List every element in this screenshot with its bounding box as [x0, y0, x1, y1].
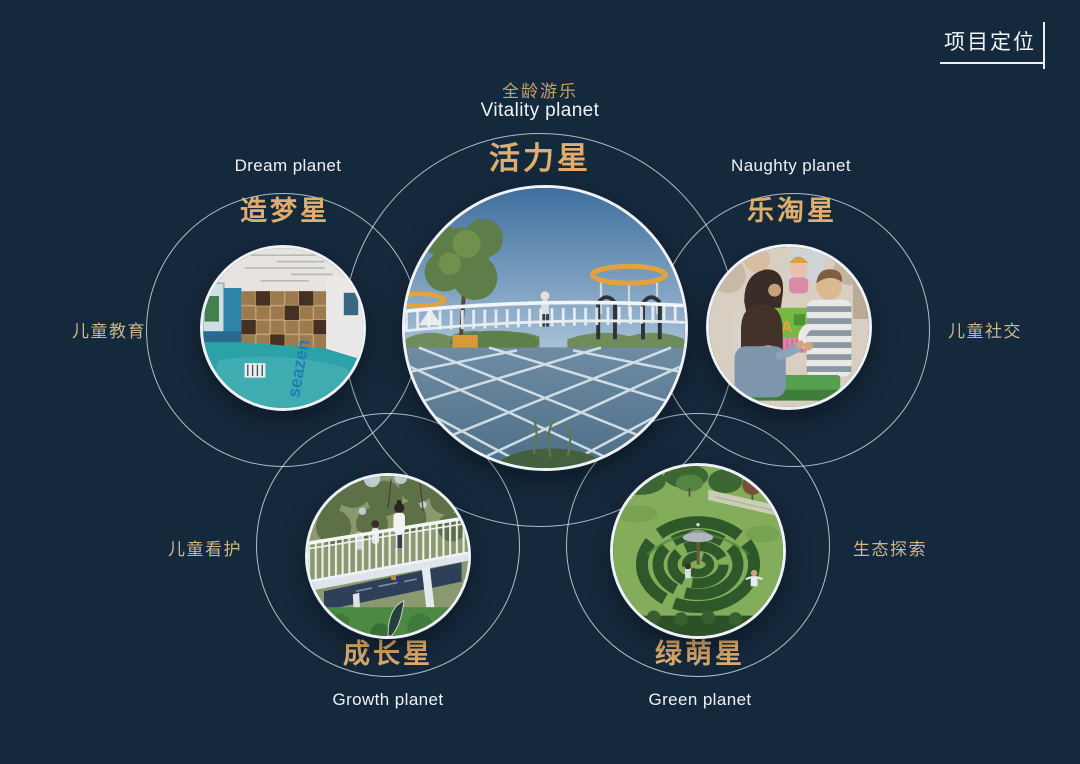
photo-green [610, 463, 786, 639]
growth-photo-illustration [308, 476, 468, 636]
vitality-name-zh: 活力星 [420, 142, 660, 176]
slide-canvas: 项目定位 全龄游乐 Vitality planet 活力星 Dream plan… [0, 0, 1080, 764]
side-label-social: 儿童社交 [948, 317, 1022, 342]
letter-block-text: A [781, 319, 793, 336]
green-name-en: Green planet [600, 691, 800, 710]
side-label-care: 儿童看护 [168, 535, 242, 560]
side-label-eco: 生态探索 [853, 535, 927, 560]
vitality-photo-illustration [405, 188, 685, 468]
photo-dream: seazen [200, 245, 366, 411]
green-photo-illustration [613, 466, 783, 636]
vitality-category-label: 全龄游乐 [440, 77, 640, 102]
side-label-education: 儿童教育 [72, 317, 146, 342]
growth-name-zh: 成长星 [288, 640, 488, 670]
vitality-name-en: Vitality planet [420, 101, 660, 122]
growth-name-en: Growth planet [288, 691, 488, 710]
naughty-name-zh: 乐淘星 [692, 197, 892, 227]
dream-photo-illustration: seazen [203, 248, 363, 408]
green-name-zh: 绿萌星 [600, 640, 800, 670]
dream-name-zh: 造梦星 [185, 197, 385, 227]
page-title-text: 项目定位 [944, 31, 1036, 54]
photo-growth [305, 473, 471, 639]
title-underline-tick [1043, 22, 1045, 69]
photo-naughty: A [706, 244, 872, 410]
page-title: 项目定位 [940, 24, 1044, 64]
photo-vitality [402, 185, 688, 471]
dream-name-en: Dream planet [188, 157, 388, 176]
naughty-photo-illustration: A [709, 247, 869, 407]
naughty-name-en: Naughty planet [691, 157, 891, 176]
